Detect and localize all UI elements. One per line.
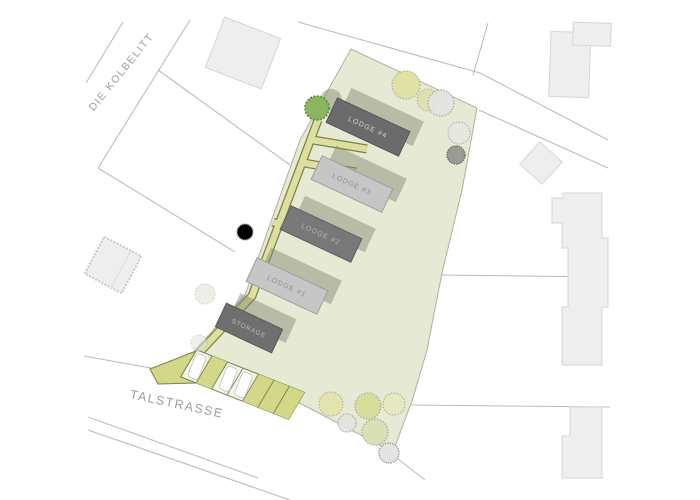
neighbor-building: [205, 17, 280, 89]
parcel-line: [98, 168, 235, 252]
tree-icon: [448, 122, 470, 144]
road-line: [88, 417, 258, 478]
deciduous-tree-icon: [305, 96, 329, 120]
tree-icon: [355, 393, 381, 419]
tree-icon: [362, 419, 388, 445]
tree-icon: [392, 71, 420, 99]
conifer-tree-icon: [447, 146, 465, 164]
neighbor-building: [573, 22, 612, 46]
parcel-line: [473, 23, 488, 75]
street-label-kolbelitt: DIE KOLBELITT: [87, 31, 157, 114]
tree-icon: [383, 393, 405, 415]
road-line: [88, 430, 290, 500]
tree-icon: [191, 335, 207, 351]
tree-icon: [338, 414, 356, 432]
street-label-talstrasse: TALSTRASSE: [129, 387, 225, 421]
tree-icon: [379, 443, 399, 463]
tree-icon: [319, 392, 343, 416]
tree-icon: [237, 224, 253, 240]
neighbor-building: [552, 193, 608, 365]
neighbor-building: [562, 407, 602, 478]
tree-icon: [195, 284, 215, 304]
parcel-line: [158, 70, 290, 165]
tree-icon: [428, 90, 454, 116]
site-plan: LODGE #4 LODGE #3 LODGE #2 LODGE #1 STOR…: [0, 0, 700, 500]
neighbor-building: [520, 142, 562, 184]
